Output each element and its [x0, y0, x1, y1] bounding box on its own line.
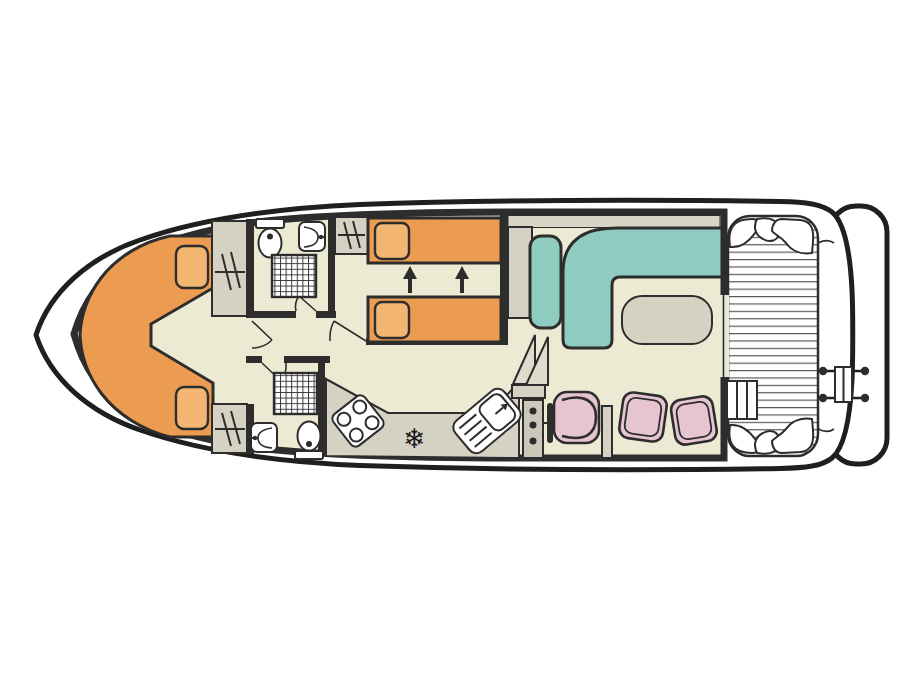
- fridge-snowflake-icon: ❄: [403, 423, 426, 454]
- aft-deck: [727, 216, 834, 456]
- steering-wheel: [547, 403, 553, 443]
- shower: [274, 373, 317, 414]
- washbasin: [250, 423, 277, 452]
- pillow: [176, 246, 208, 288]
- boat-floor-plan-canvas: ❄: [0, 0, 899, 674]
- saloon-table: [622, 296, 712, 344]
- washbasin: [299, 222, 326, 251]
- pillow: [375, 223, 409, 259]
- pillow: [176, 387, 208, 429]
- sofa-bench: [530, 236, 561, 328]
- shower: [272, 255, 316, 297]
- toilet: [256, 219, 284, 258]
- toilet: [295, 422, 323, 460]
- helm-seat: [554, 392, 599, 443]
- dinette-stool: [670, 395, 719, 446]
- wardrobe: [335, 217, 368, 254]
- wardrobe: [212, 221, 247, 316]
- aft-deck-steps: [727, 381, 757, 419]
- boat-floor-plan: ❄: [0, 0, 899, 674]
- wardrobe: [212, 404, 247, 453]
- saloon-aft-door: [719, 295, 729, 377]
- sideboard: [508, 227, 532, 318]
- dinette-stool: [618, 391, 668, 443]
- saloon-top-shelf: [508, 216, 720, 228]
- dinette-partition: [602, 406, 612, 458]
- pillow: [375, 302, 409, 338]
